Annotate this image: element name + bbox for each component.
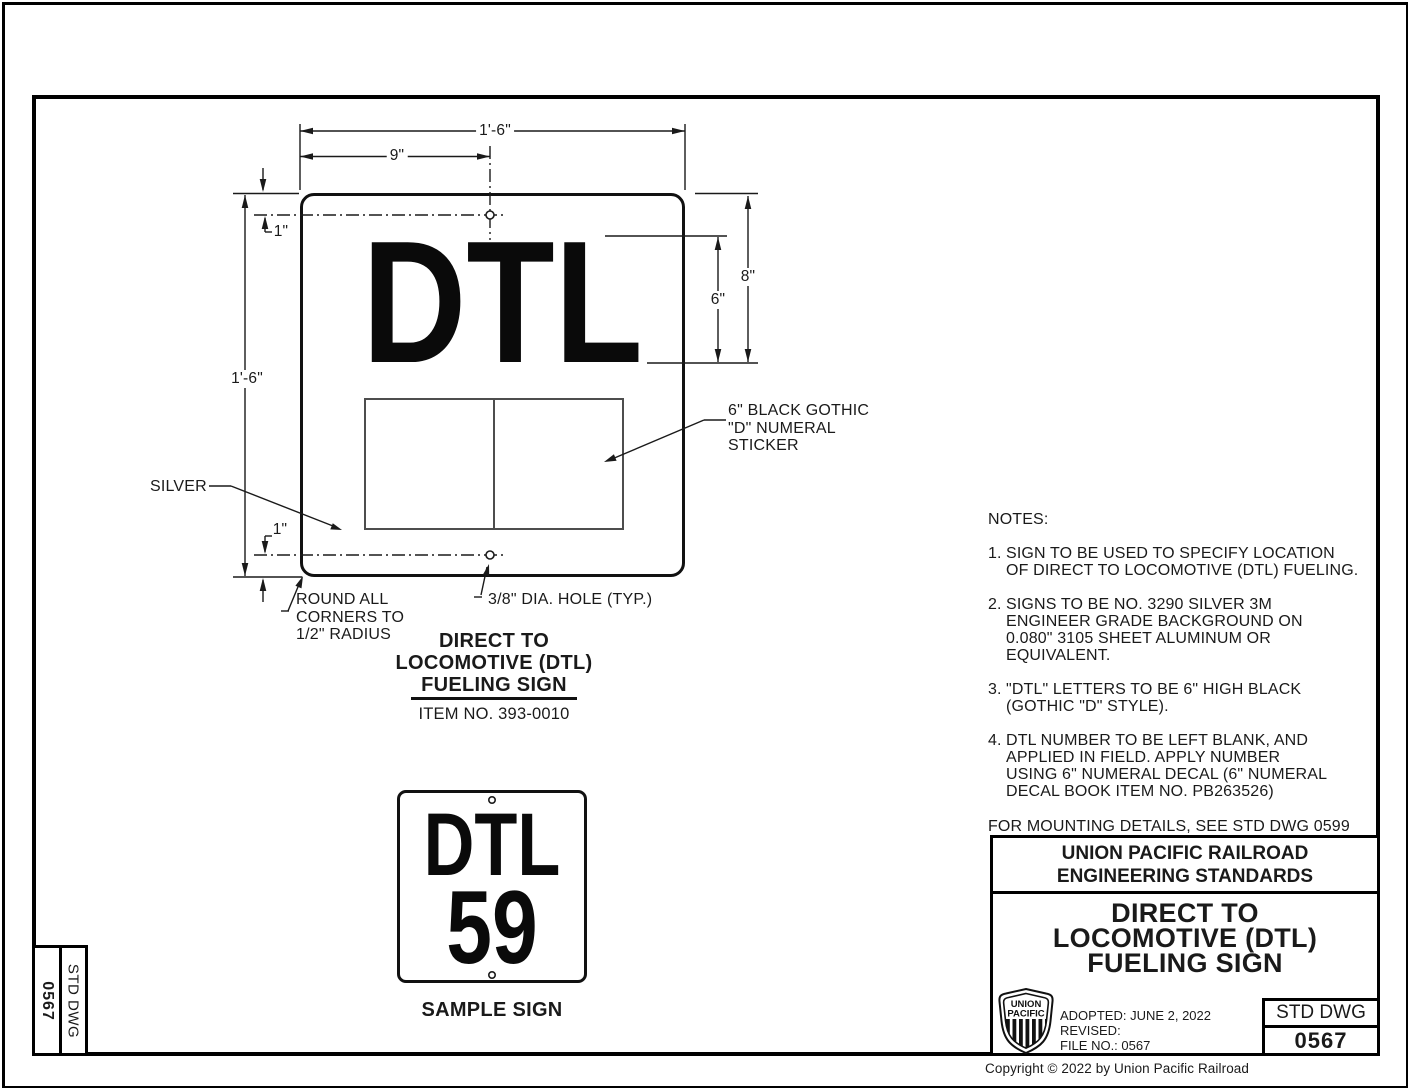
callout-sticker-line2: "D" NUMERAL bbox=[728, 420, 869, 438]
note-3-text: "DTL" LETTERS TO BE 6" HIGH BLACK (GOTHI… bbox=[1006, 681, 1301, 715]
note-1-number: 1. bbox=[988, 545, 1006, 579]
note-3-number: 3. bbox=[988, 681, 1006, 715]
side-tab-label: STD DWG bbox=[65, 963, 82, 1037]
note-3: 3. "DTL" LETTERS TO BE 6" HIGH BLACK (GO… bbox=[988, 681, 1390, 715]
copyright-notice: Copyright © 2022 by Union Pacific Railro… bbox=[985, 1061, 1249, 1076]
diagram-caption: DIRECT TO LOCOMOTIVE (DTL) FUELING SIGN … bbox=[358, 630, 630, 725]
drawing-title-line3: FUELING SIGN bbox=[993, 951, 1377, 976]
note-2-line3: 0.080" 3105 SHEET ALUMINUM OR bbox=[1006, 630, 1303, 647]
note-2: 2. SIGNS TO BE NO. 3290 SILVER 3M ENGINE… bbox=[988, 596, 1390, 664]
shield-text-pacific: PACIFIC bbox=[1007, 1009, 1044, 1020]
note-4-line1: DTL NUMBER TO BE LEFT BLANK, AND bbox=[1006, 732, 1327, 749]
note-4: 4. DTL NUMBER TO BE LEFT BLANK, AND APPL… bbox=[988, 732, 1390, 800]
std-dwg-number: 0567 bbox=[1265, 1028, 1377, 1054]
std-dwg-number-box: STD DWG 0567 bbox=[1262, 998, 1380, 1056]
note-4-number: 4. bbox=[988, 732, 1006, 800]
callout-silver: SILVER bbox=[150, 478, 207, 496]
callout-corners-line1: ROUND ALL bbox=[296, 591, 404, 609]
callout-numeral-sticker: 6" BLACK GOTHIC "D" NUMERAL STICKER bbox=[728, 402, 869, 455]
dim-bottom-hole-margin: 1" bbox=[270, 521, 291, 539]
note-2-text: SIGNS TO BE NO. 3290 SILVER 3M ENGINEER … bbox=[1006, 596, 1303, 664]
note-2-line2: ENGINEER GRADE BACKGROUND ON bbox=[1006, 613, 1303, 630]
file-number: FILE NO.: 0567 bbox=[1060, 1038, 1211, 1053]
standard-drawing-page: DTL DTL 59 bbox=[0, 0, 1408, 1088]
adopted-date: ADOPTED: JUNE 2, 2022 bbox=[1060, 1008, 1211, 1023]
union-pacific-shield-logo: UNION PACIFIC bbox=[997, 988, 1055, 1054]
note-3-line2: (GOTHIC "D" STYLE). bbox=[1006, 698, 1301, 715]
sample-sign-caption: SAMPLE SIGN bbox=[397, 999, 587, 1022]
title-block-header: UNION PACIFIC RAILROAD ENGINEERING STAND… bbox=[993, 838, 1377, 894]
caption-line1: DIRECT TO bbox=[358, 630, 630, 652]
caption-item-no: ITEM NO. 393-0010 bbox=[358, 703, 630, 725]
numeral-sticker-area bbox=[364, 398, 624, 530]
notes-heading: NOTES: bbox=[988, 511, 1390, 528]
note-4-text: DTL NUMBER TO BE LEFT BLANK, AND APPLIED… bbox=[1006, 732, 1327, 800]
note-4-line3: USING 6" NUMERAL DECAL (6" NUMERAL bbox=[1006, 766, 1327, 783]
sign-letters-dtl: DTL bbox=[343, 215, 663, 389]
caption-line3: FUELING SIGN bbox=[358, 674, 630, 700]
note-4-line2: APPLIED IN FIELD. APPLY NUMBER bbox=[1006, 749, 1327, 766]
revised-date: REVISED: bbox=[1060, 1023, 1211, 1038]
side-tab: 0567 STD DWG bbox=[32, 945, 88, 1056]
side-tab-number-cell: 0567 bbox=[35, 948, 62, 1053]
note-1-line1: SIGN TO BE USED TO SPECIFY LOCATION bbox=[1006, 545, 1358, 562]
dim-top-hole-margin: 1" bbox=[271, 223, 292, 241]
callout-hole: 3/8" DIA. HOLE (TYP.) bbox=[488, 591, 652, 609]
callout-corners-line2: CORNERS TO bbox=[296, 609, 404, 627]
side-tab-number: 0567 bbox=[38, 981, 56, 1021]
title-block-meta: ADOPTED: JUNE 2, 2022 REVISED: FILE NO.:… bbox=[1060, 1008, 1211, 1053]
caption-line3-text: FUELING SIGN bbox=[411, 674, 577, 700]
note-3-line1: "DTL" LETTERS TO BE 6" HIGH BLACK bbox=[1006, 681, 1301, 698]
callout-sticker-line1: 6" BLACK GOTHIC bbox=[728, 402, 869, 420]
notes-block: NOTES: 1. SIGN TO BE USED TO SPECIFY LOC… bbox=[988, 511, 1390, 835]
note-4-line4: DECAL BOOK ITEM NO. PB263526) bbox=[1006, 783, 1327, 800]
drawing-title: DIRECT TO LOCOMOTIVE (DTL) FUELING SIGN bbox=[993, 894, 1377, 976]
callout-sticker-line3: STICKER bbox=[728, 437, 869, 455]
note-1: 1. SIGN TO BE USED TO SPECIFY LOCATION O… bbox=[988, 545, 1390, 579]
note-1-text: SIGN TO BE USED TO SPECIFY LOCATION OF D… bbox=[1006, 545, 1358, 579]
dim-letter-height: 6" bbox=[708, 291, 729, 309]
dim-hole-offset: 9" bbox=[387, 147, 408, 165]
org-name-line1: UNION PACIFIC RAILROAD bbox=[993, 842, 1377, 865]
sample-sign-number: 59 bbox=[417, 876, 567, 980]
dim-letters-to-top: 8" bbox=[738, 268, 759, 286]
note-2-line1: SIGNS TO BE NO. 3290 SILVER 3M bbox=[1006, 596, 1303, 613]
mounting-details-note: FOR MOUNTING DETAILS, SEE STD DWG 0599 bbox=[988, 818, 1390, 835]
caption-line2: LOCOMOTIVE (DTL) bbox=[358, 652, 630, 674]
note-2-line4: EQUIVALENT. bbox=[1006, 647, 1303, 664]
note-1-line2: OF DIRECT TO LOCOMOTIVE (DTL) FUELING. bbox=[1006, 562, 1358, 579]
dim-overall-width: 1'-6" bbox=[476, 122, 514, 140]
dim-overall-height: 1'-6" bbox=[228, 370, 266, 388]
org-name-line2: ENGINEERING STANDARDS bbox=[993, 865, 1377, 888]
std-dwg-label: STD DWG bbox=[1265, 1001, 1377, 1028]
side-tab-label-cell: STD DWG bbox=[62, 948, 86, 1053]
note-2-number: 2. bbox=[988, 596, 1006, 664]
